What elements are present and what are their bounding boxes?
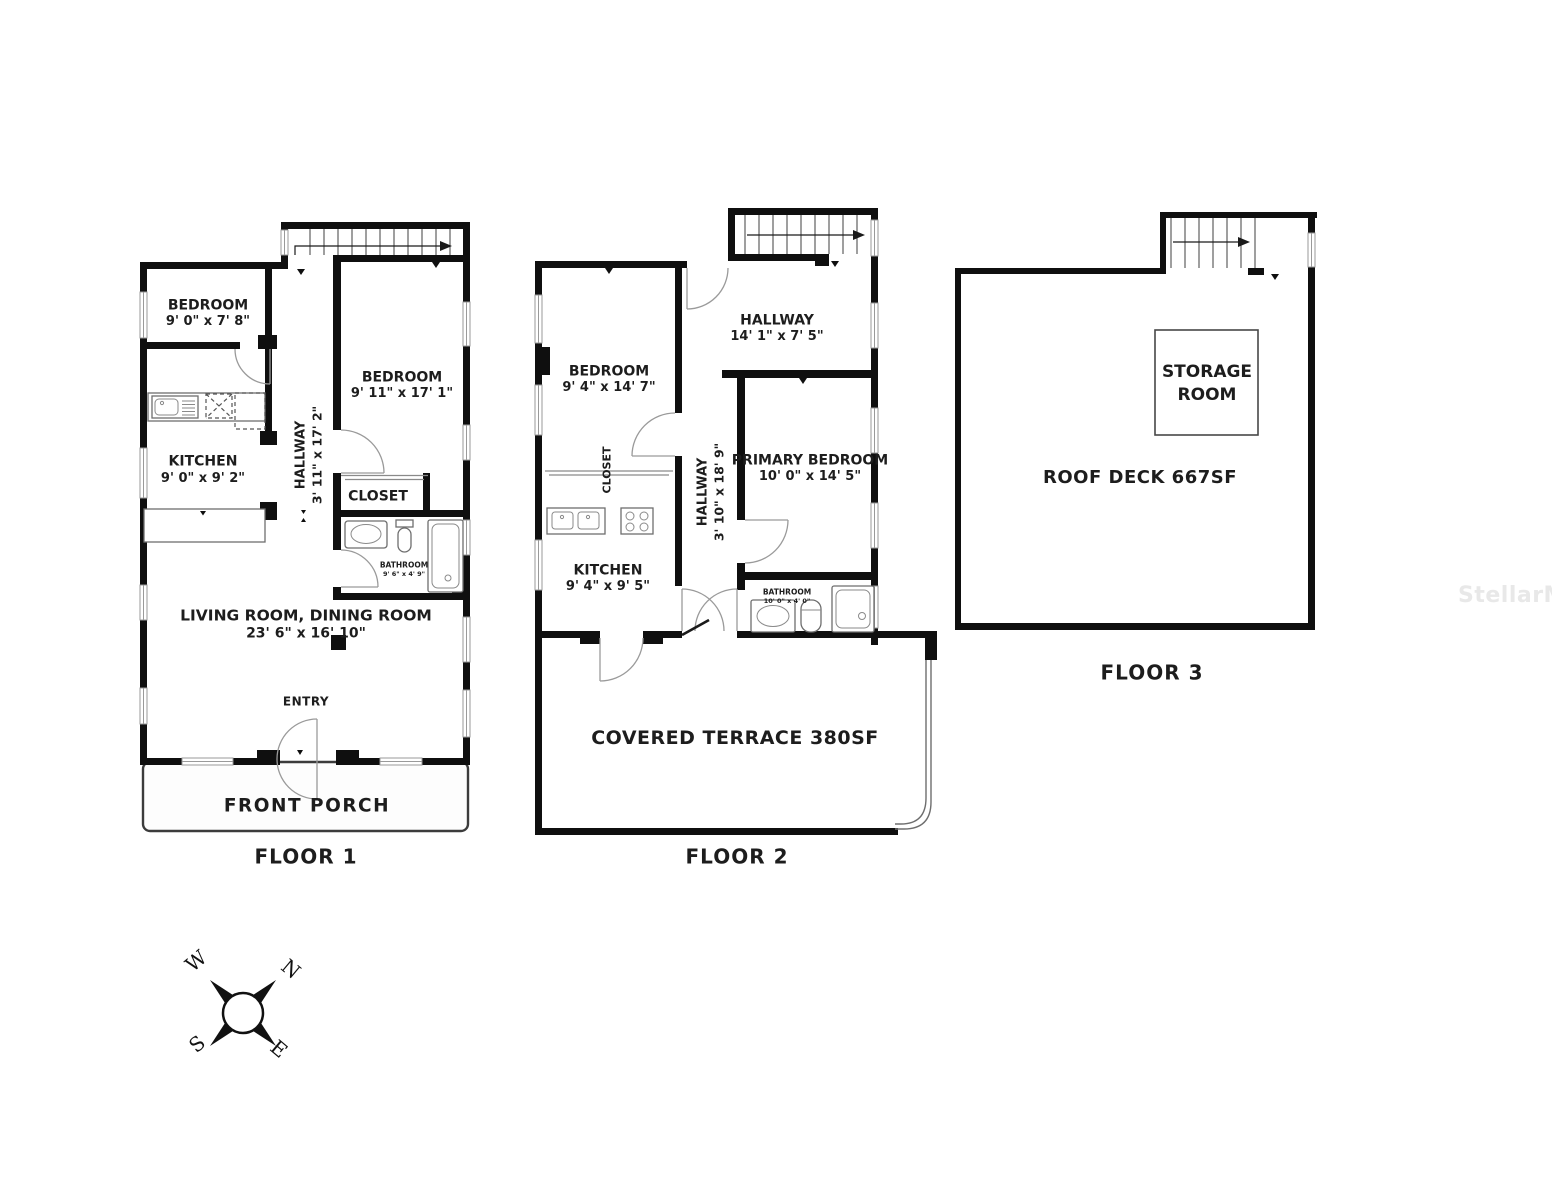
floor1-entry-label: ENTRY [283,695,329,710]
floor2-bedroom-name: BEDROOM [569,363,649,381]
floor1-bathroom-dims: 9' 6" x 4' 9" [383,570,425,578]
floor2-label: FLOOR 2 [686,845,789,870]
watermark: StellarMLS [1458,583,1552,608]
floor1-bathroom-name: BATHROOM [380,560,428,569]
floor1-front-porch-label: FRONT PORCH [224,794,390,817]
floor2-bathroom-dims: 10' 0" x 4' 0" [764,597,811,605]
floor2-hallway-upper-dims: 14' 1" x 7' 5" [730,329,823,345]
floor2-hallway-upper-name: HALLWAY [740,312,814,330]
sink-icon [152,396,198,418]
floor2-bedroom-dims: 9' 4" x 14' 7" [562,380,655,396]
compass-south-label: S [184,1030,210,1057]
floor1-bathroom-fixtures [345,520,463,592]
floor3-walls [955,212,1317,630]
floor2-hallway-dims: 3' 10" x 18' 9" [711,443,726,541]
floor3-roof-deck-label: ROOF DECK 667SF [1043,467,1237,490]
stairs-icon [1171,218,1255,268]
stove-icon [621,508,653,534]
floor2-kitchen-fixtures [547,508,653,534]
floor2-closet-label: CLOSET [600,447,613,494]
floor1-living-name: LIVING ROOM, DINING ROOM [180,606,432,625]
floor1-hallway-dims: 3' 11" x 17' 2" [309,406,324,504]
floor1-bedroom2-name: BEDROOM [362,369,442,387]
sink-icon [547,508,605,534]
floor1-hallway-name: HALLWAY [294,406,310,504]
floor3-storage-room-label: STORAGE ROOM [1152,361,1262,407]
floor2-covered-terrace-label: COVERED TERRACE 380SF [591,727,879,751]
floor1-hallway-label: HALLWAY 3' 11" x 17' 2" [294,406,325,504]
floor-plan-canvas: BEDROOM 9' 0" x 7' 8" BEDROOM 9' 11" x 1… [0,0,1552,1200]
floor3-plan [955,210,1317,634]
toilet-icon [396,520,413,552]
floor1-bedroom1-dims: 9' 0" x 7' 8" [166,314,250,330]
floor2-hallway-name: HALLWAY [696,443,712,541]
floor1-kitchen-name: KITCHEN [169,453,238,471]
counter-peninsula [144,509,265,542]
shower-icon [832,586,874,632]
floor1-label: FLOOR 1 [255,845,358,870]
compass-circle [223,993,263,1033]
floor1-bedroom2-dims: 9' 11" x 17' 1" [351,386,453,402]
floor2-kitchen-name: KITCHEN [574,562,643,580]
floor3-windows [1308,233,1315,267]
compass-north-label: N [277,954,306,984]
stairs-icon [295,229,452,255]
floor1-bedroom1-name: BEDROOM [168,297,248,315]
floor2-primary-dims: 10' 0" x 14' 5" [759,469,861,485]
floor2-hallway-label: HALLWAY 3' 10" x 18' 9" [696,443,727,541]
terrace-railing [895,660,931,829]
floor2-bathroom-name: BATHROOM [763,587,811,596]
floor1-closet-name: CLOSET [348,488,408,506]
stairs-icon [745,215,865,254]
sink-icon [345,521,387,548]
compass-rose: N W S E [175,945,311,1081]
floor2-kitchen-dims: 9' 4" x 9' 5" [566,579,650,595]
floor1-kitchen-dims: 9' 0" x 9' 2" [161,471,245,487]
floor2-primary-name: PRIMARY BEDROOM [732,452,888,470]
floor3-label: FLOOR 3 [1101,661,1204,686]
compass-west-label: W [180,945,212,977]
shower-icon [428,520,463,592]
floor1-living-dims: 23' 6" x 16' 10" [246,625,366,643]
